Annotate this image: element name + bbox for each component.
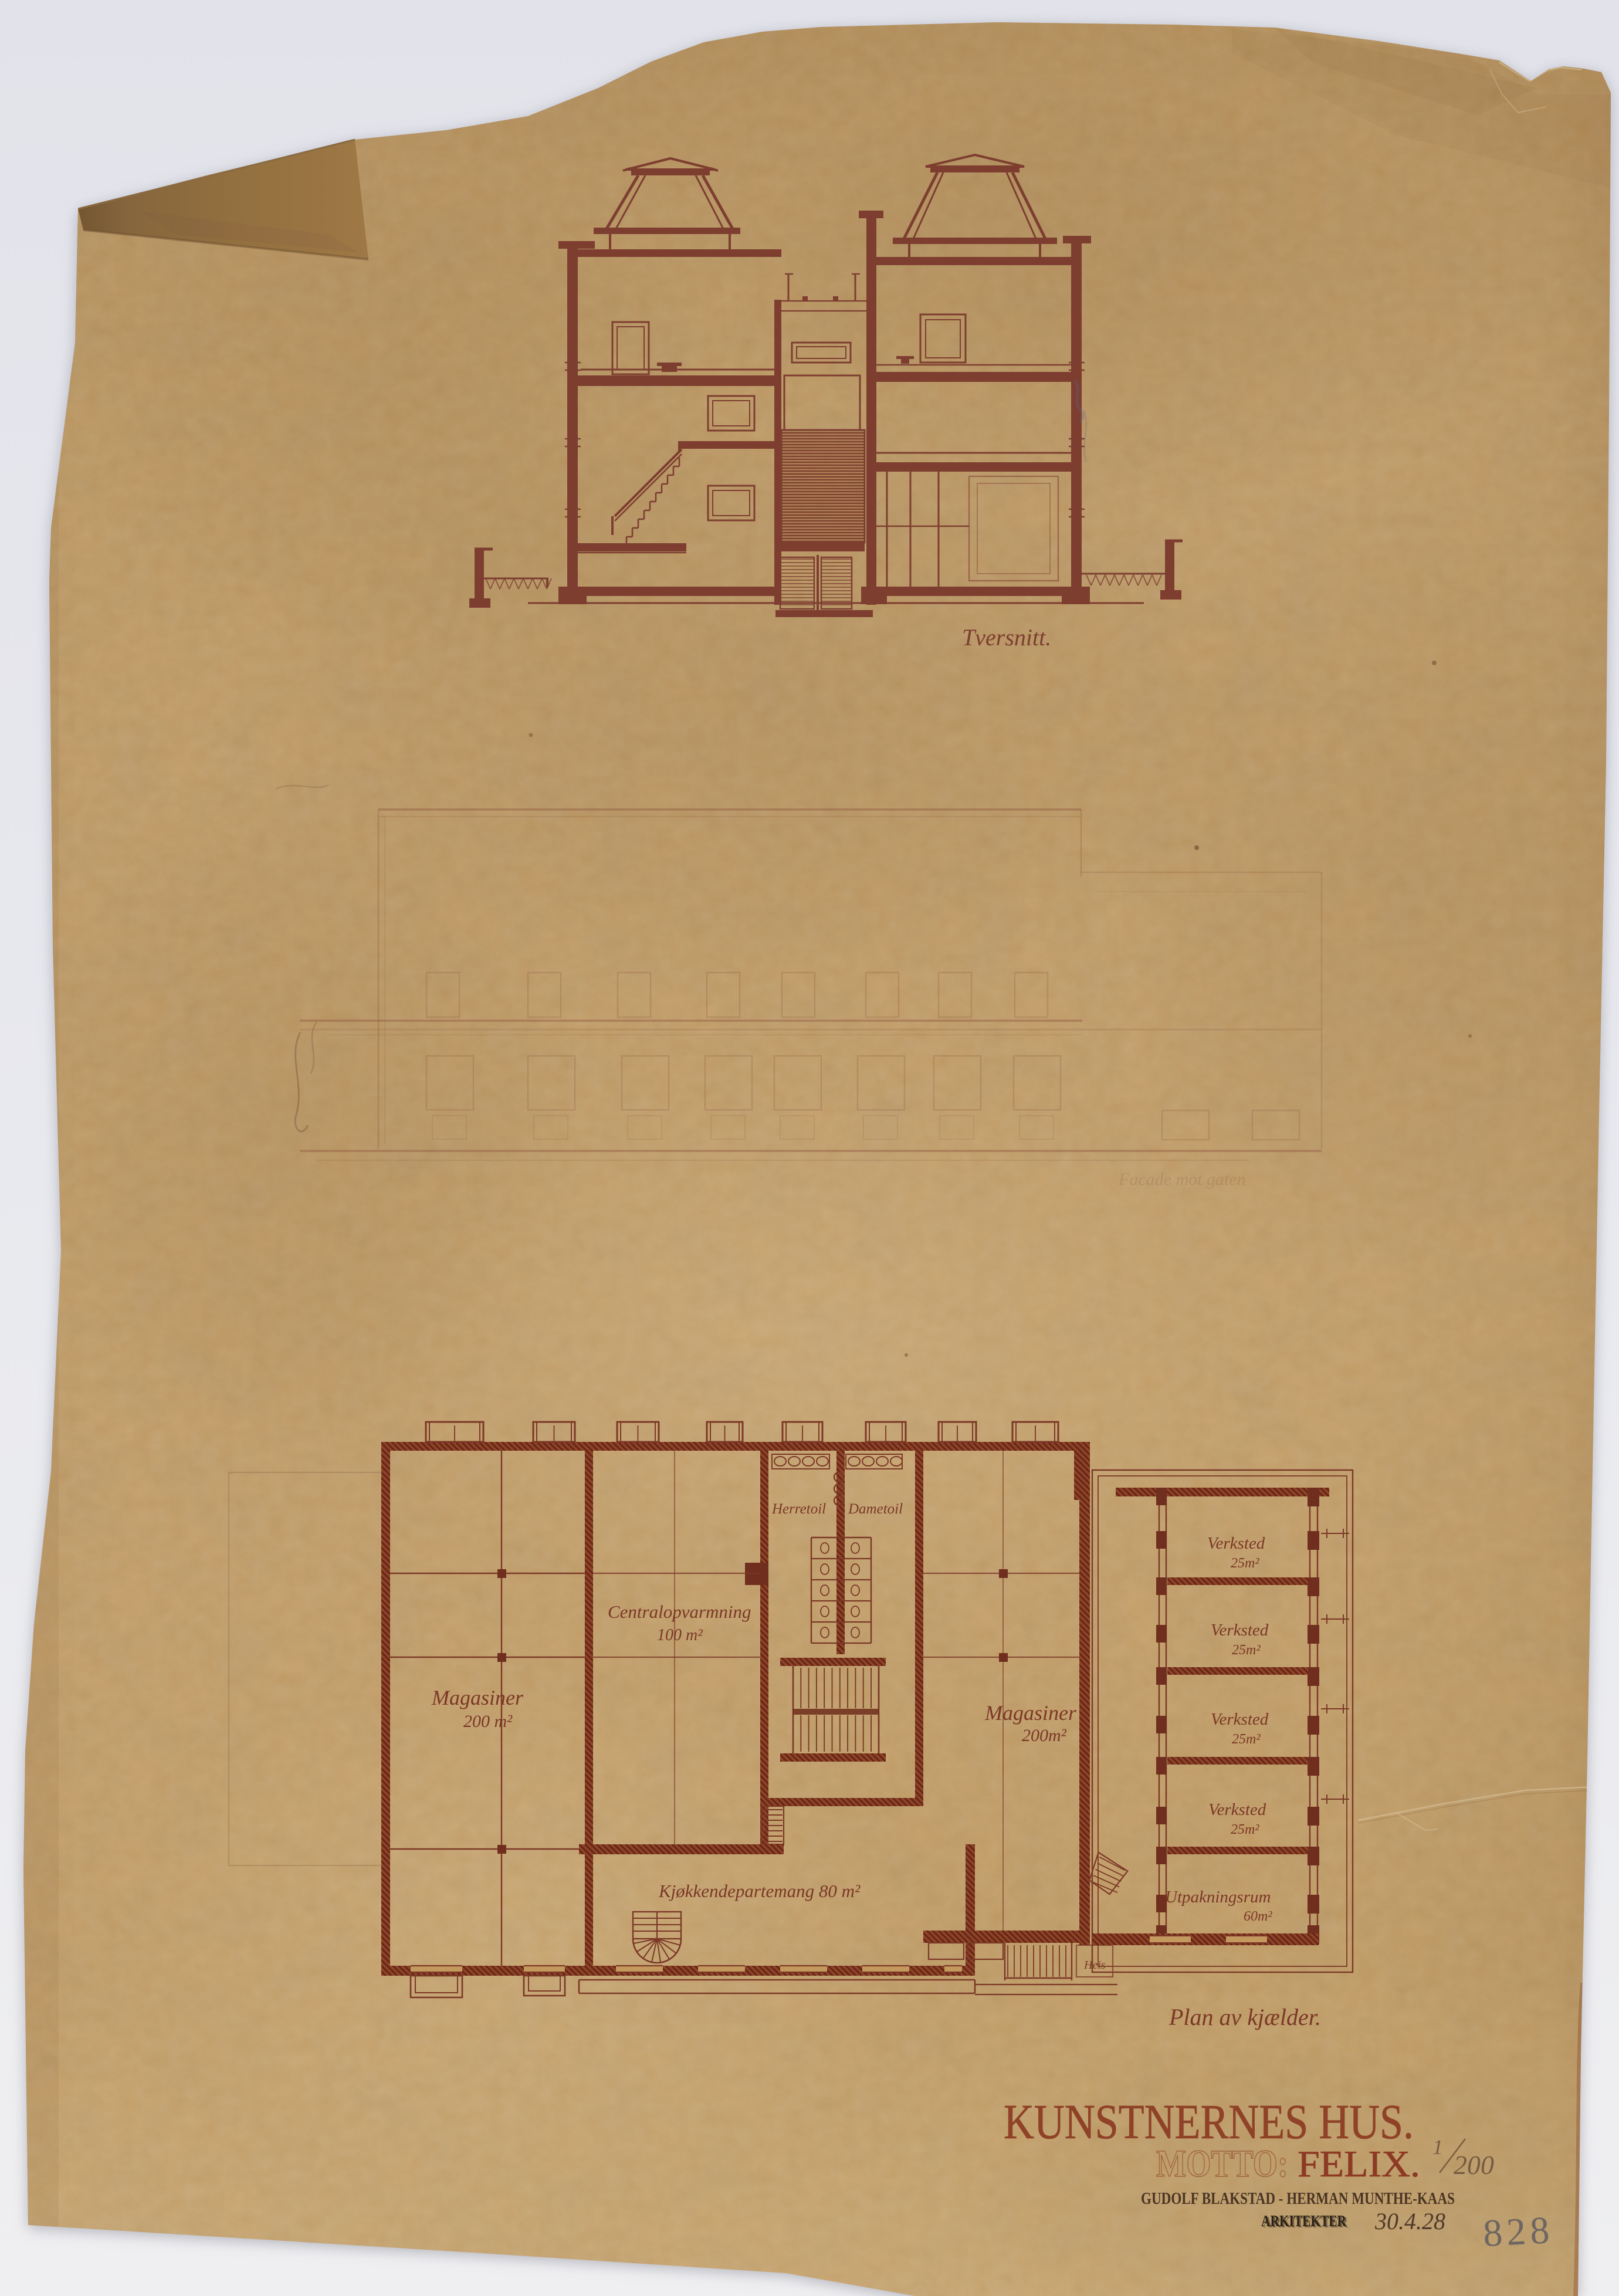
svg-text:Verksted: Verksted — [1211, 1621, 1269, 1640]
svg-text:Herretoil: Herretoil — [771, 1501, 826, 1517]
svg-text:25m²: 25m² — [1232, 1732, 1261, 1747]
svg-text:Verksted: Verksted — [1211, 1710, 1269, 1729]
svg-text:Centralopvarmning: Centralopvarmning — [608, 1601, 751, 1622]
svg-text:200 m²: 200 m² — [463, 1712, 513, 1731]
svg-text:KUNSTNERNES HUS.: KUNSTNERNES HUS. — [1004, 2095, 1414, 2149]
svg-text:Utpakningsrum: Utpakningsrum — [1165, 1888, 1271, 1906]
svg-text:Heis: Heis — [1083, 1959, 1106, 1972]
svg-text:Kjøkkendepartemang 80 m²: Kjøkkendepartemang 80 m² — [658, 1881, 861, 1901]
svg-text:1: 1 — [1432, 2135, 1443, 2159]
svg-text:Dametoil: Dametoil — [848, 1501, 903, 1517]
svg-text:Magasiner: Magasiner — [431, 1686, 524, 1709]
svg-text:Facade mot gaten: Facade mot gaten — [1118, 1170, 1246, 1189]
svg-text:828: 828 — [1482, 2209, 1554, 2255]
svg-text:Magasiner: Magasiner — [984, 1701, 1077, 1725]
svg-text:Tversnitt.: Tversnitt. — [962, 624, 1051, 651]
svg-text:Verksted: Verksted — [1207, 1534, 1265, 1553]
svg-text:200: 200 — [1454, 2150, 1494, 2180]
svg-text:60m²: 60m² — [1244, 1909, 1272, 1924]
svg-text:ARKITEKTER: ARKITEKTER — [1263, 2213, 1348, 2231]
svg-text:GUDOLF BLAKSTAD - HERMAN MUNTH: GUDOLF BLAKSTAD - HERMAN MUNTHE-KAAS — [1141, 2189, 1455, 2208]
svg-text:30.4.28: 30.4.28 — [1374, 2208, 1445, 2234]
svg-text:200m²: 200m² — [1022, 1726, 1067, 1745]
svg-text:Plan av kjælder.: Plan av kjælder. — [1168, 2004, 1321, 2030]
svg-text:MOTTO:: MOTTO: — [1156, 2142, 1288, 2185]
svg-text:100 m²: 100 m² — [657, 1626, 703, 1644]
svg-text:Verksted: Verksted — [1208, 1800, 1266, 1819]
svg-text:25m²: 25m² — [1231, 1556, 1259, 1571]
svg-text:FELIX.: FELIX. — [1298, 2143, 1420, 2185]
svg-text:25m²: 25m² — [1231, 1822, 1259, 1837]
svg-text:25m²: 25m² — [1232, 1643, 1261, 1658]
